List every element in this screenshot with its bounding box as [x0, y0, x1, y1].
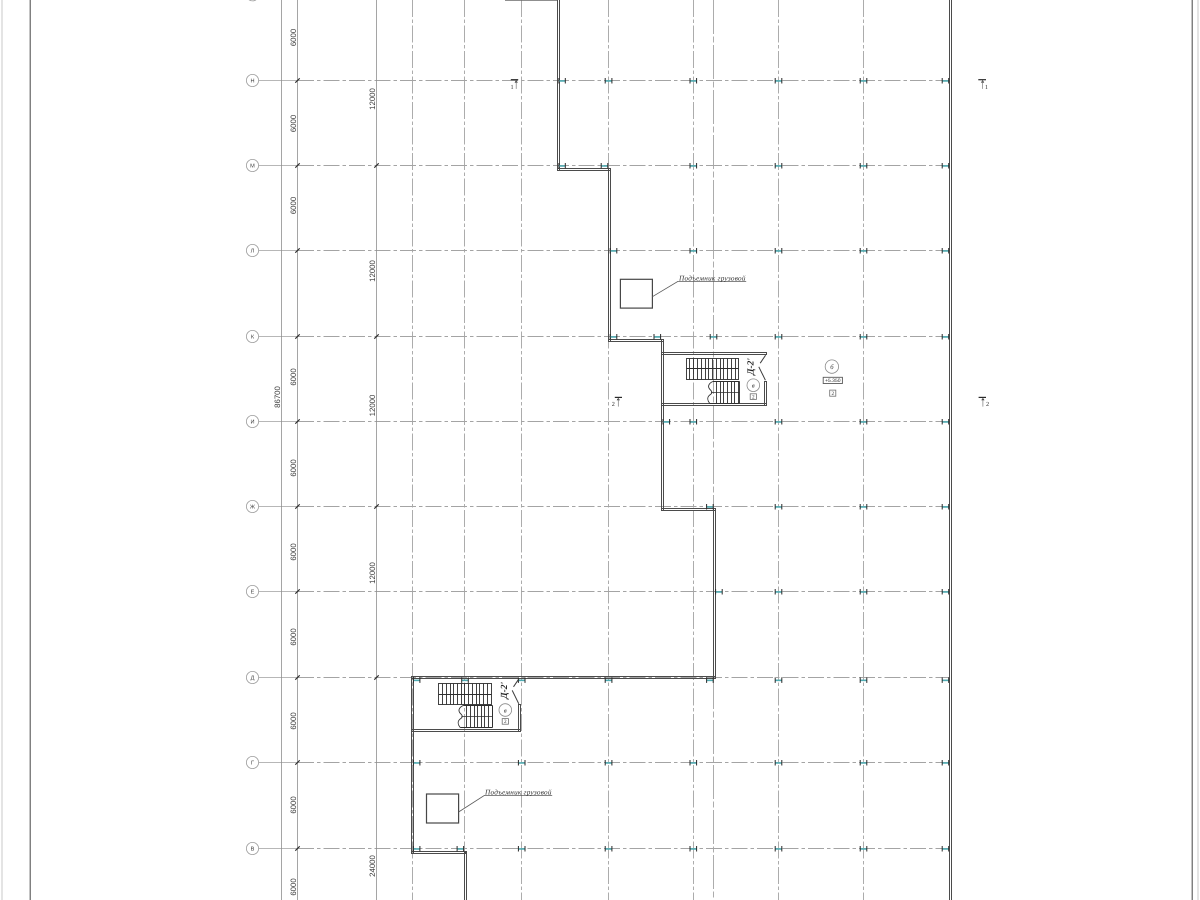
svg-text:6000: 6000	[289, 459, 298, 477]
svg-text:6000: 6000	[289, 114, 298, 132]
svg-text:2: 2	[504, 719, 507, 725]
svg-text:в: в	[752, 383, 755, 390]
svg-text:2: 2	[832, 391, 835, 397]
svg-text:2: 2	[612, 401, 615, 408]
svg-text:Е: Е	[251, 589, 255, 595]
svg-text:1: 1	[985, 84, 988, 91]
svg-text:6000: 6000	[289, 368, 298, 386]
svg-text:Д-2': Д-2'	[500, 682, 510, 700]
svg-text:12000: 12000	[368, 561, 377, 583]
svg-text:Г: Г	[251, 760, 254, 766]
svg-text:86700: 86700	[273, 385, 282, 407]
svg-text:+5.350: +5.350	[825, 378, 841, 384]
svg-text:Л: Л	[251, 248, 255, 254]
svg-text:6000: 6000	[289, 796, 298, 814]
svg-text:24000: 24000	[368, 854, 377, 876]
svg-text:Д: Д	[251, 675, 255, 681]
svg-text:2: 2	[752, 394, 755, 400]
svg-text:6000: 6000	[289, 628, 298, 646]
svg-text:1: 1	[510, 84, 513, 91]
svg-text:Подъемник грузовой: Подъемник грузовой	[484, 788, 552, 796]
svg-text:в: в	[504, 707, 507, 714]
svg-text:6000: 6000	[289, 196, 298, 214]
svg-text:12000: 12000	[368, 394, 377, 416]
svg-text:М: М	[250, 163, 255, 169]
svg-text:И: И	[250, 419, 254, 425]
svg-text:Д-2': Д-2'	[747, 358, 757, 376]
svg-text:В: В	[251, 846, 255, 852]
svg-text:6000: 6000	[289, 28, 298, 46]
svg-text:2: 2	[986, 401, 989, 408]
svg-text:12000: 12000	[368, 87, 377, 109]
svg-text:6000: 6000	[289, 543, 298, 561]
svg-text:12000: 12000	[368, 259, 377, 281]
svg-text:Подъемник грузовой: Подъемник грузовой	[678, 274, 746, 282]
svg-text:Н: Н	[250, 78, 254, 84]
svg-text:Ж: Ж	[250, 504, 256, 510]
svg-text:6000: 6000	[289, 878, 298, 896]
svg-text:6000: 6000	[289, 712, 298, 730]
